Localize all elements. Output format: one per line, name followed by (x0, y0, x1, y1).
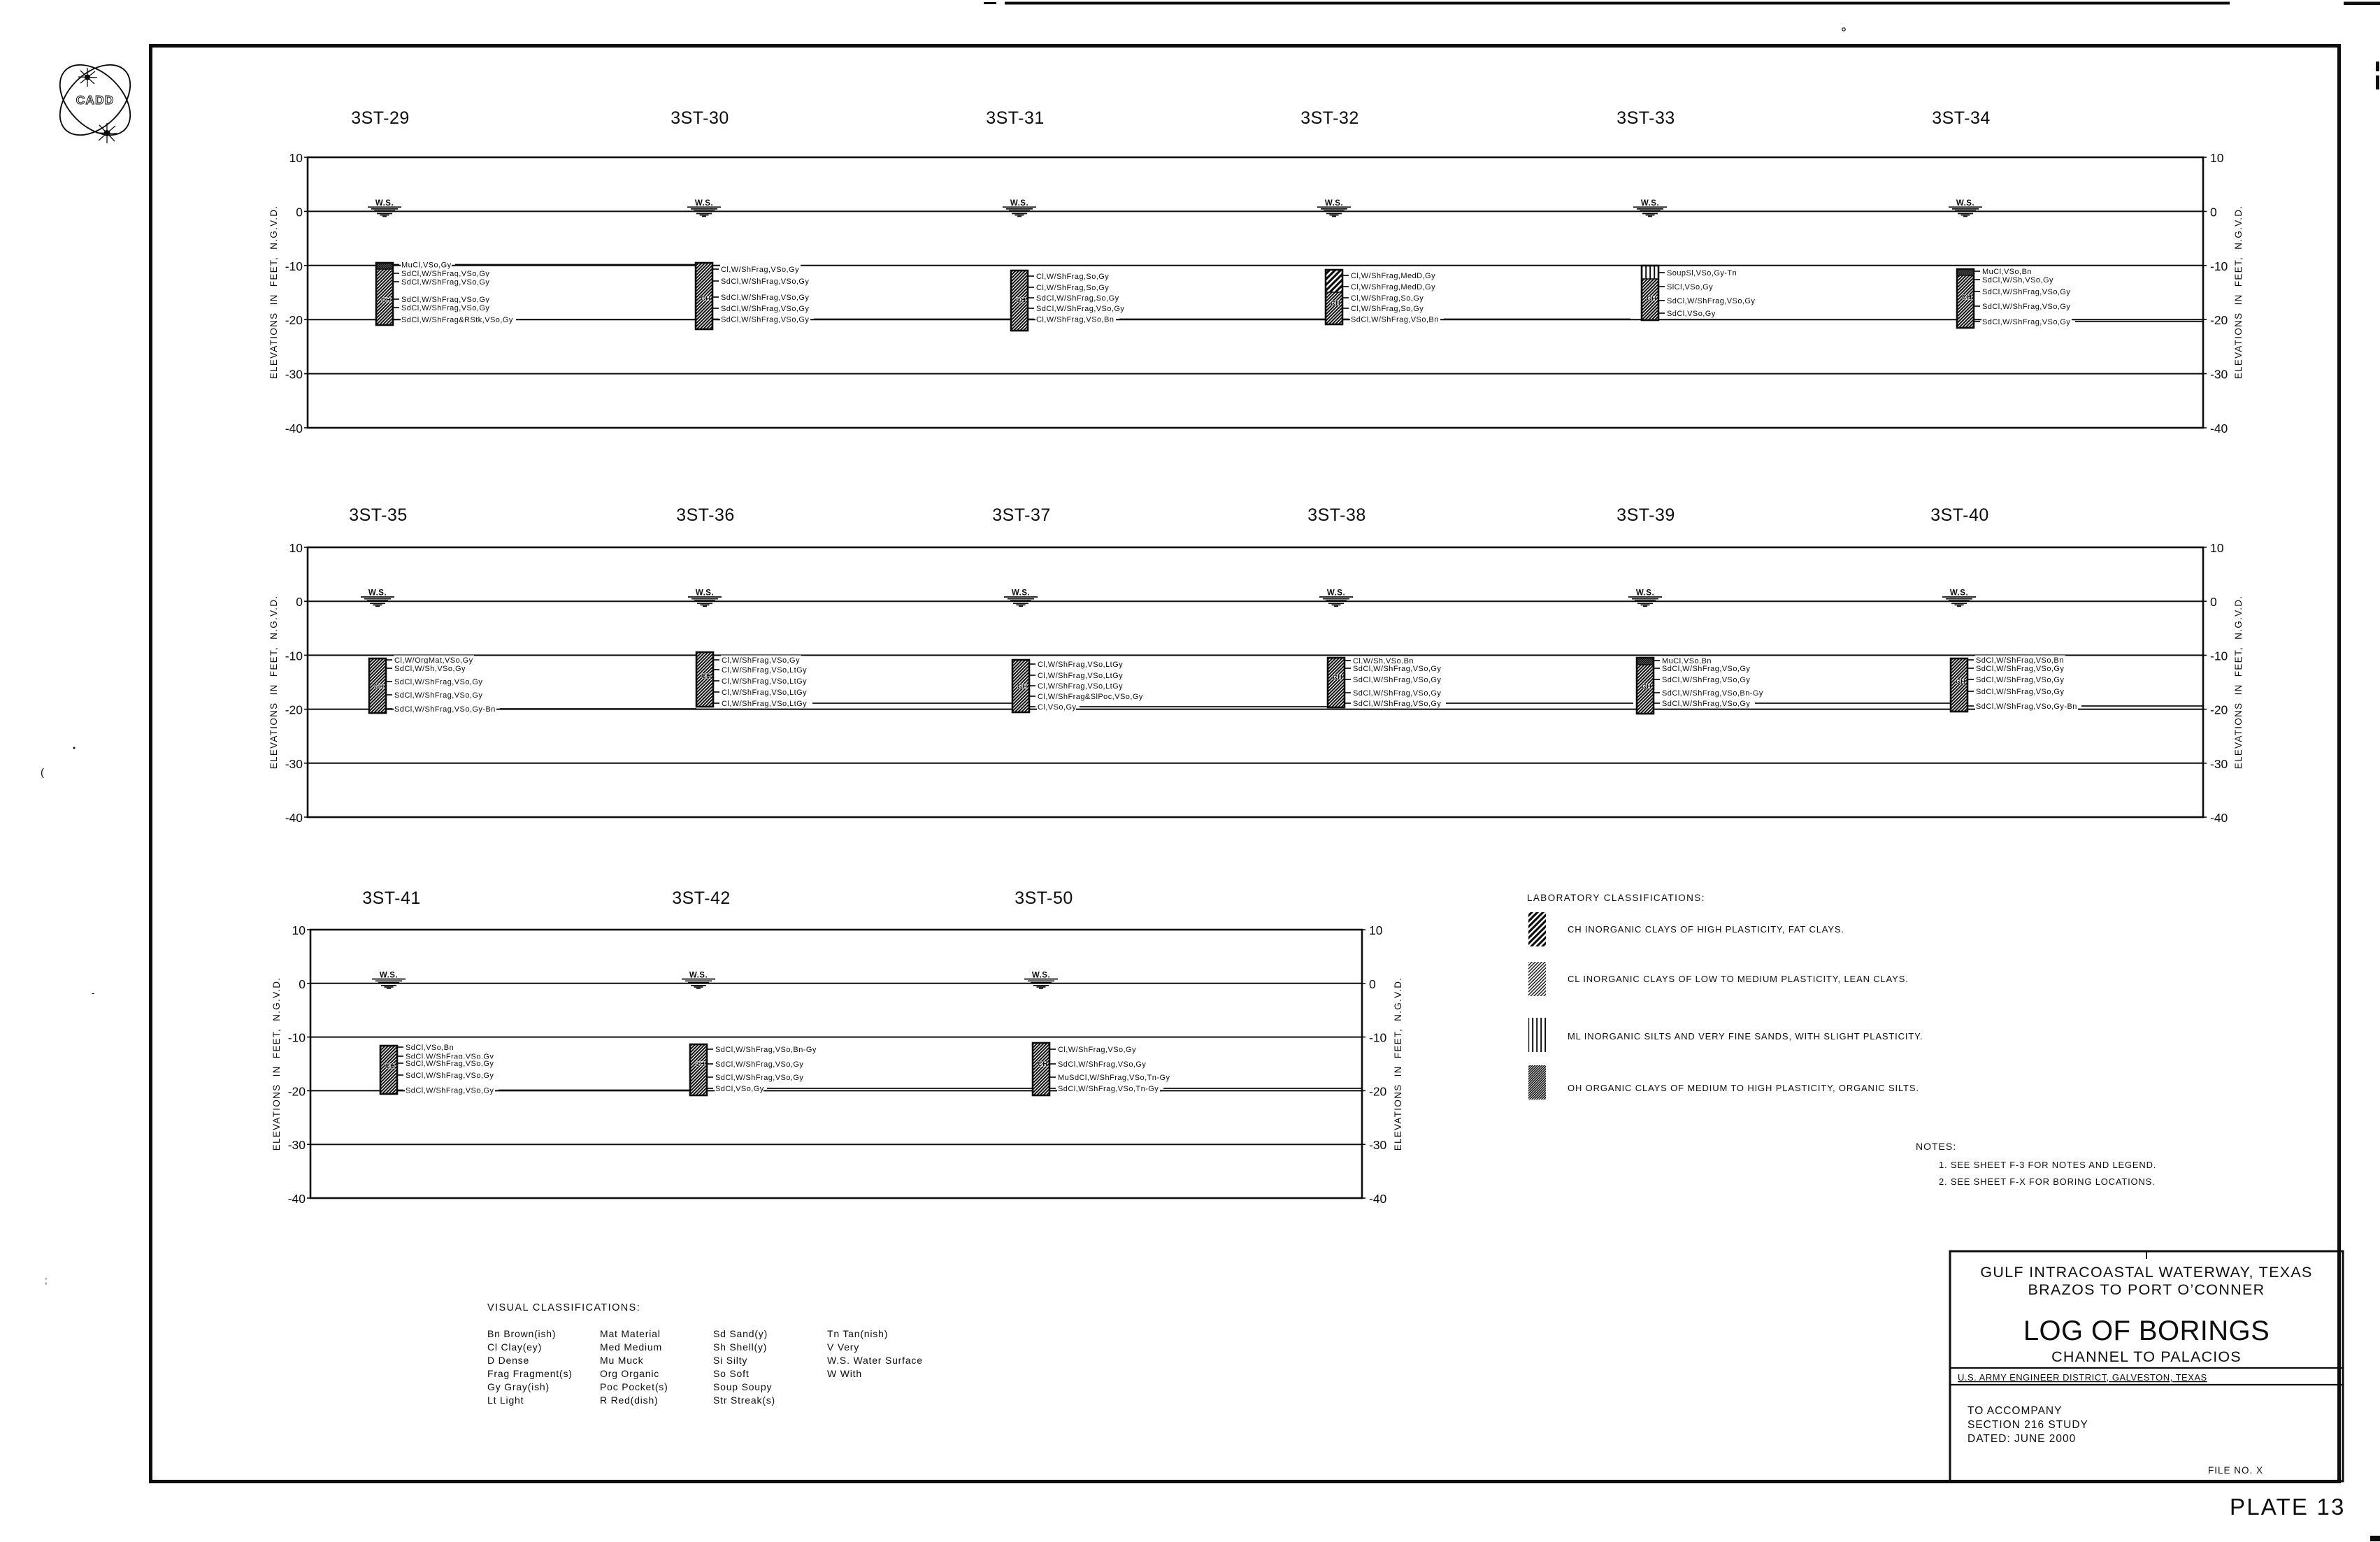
svg-text:SdCl,W/ShFrag,VSo,Gy: SdCl,W/ShFrag,VSo,Gy (1353, 676, 1441, 684)
svg-text:SdCl,W/ShFrag,VSo,Gy: SdCl,W/ShFrag,VSo,Gy (1982, 303, 2070, 311)
svg-text:Cl,W/ShFrag,VSo,Bn: Cl,W/ShFrag,VSo,Bn (1036, 316, 1114, 324)
svg-text:3ST-40: 3ST-40 (1930, 505, 1989, 525)
svg-text:CH: CH (385, 1062, 395, 1070)
svg-text:Cl,W/ShFrag,So,Gy: Cl,W/ShFrag,So,Gy (1351, 294, 1424, 303)
svg-text:SdCl,VSo,Gy: SdCl,VSo,Gy (715, 1085, 764, 1093)
svg-text:CH: CH (701, 672, 711, 680)
svg-text:SdCl,W/ShFrag,VSo,Gy: SdCl,W/ShFrag,VSo,Gy (1982, 288, 2070, 296)
svg-text:SdCl,W/ShFrag,VSo,Gy: SdCl,W/ShFrag,VSo,Gy (1353, 689, 1441, 698)
svg-text:W.S.: W.S. (696, 589, 714, 598)
svg-text:SdCl,W/ShFrag,VSo,Gy: SdCl,W/ShFrag,VSo,Gy (1662, 676, 1750, 684)
svg-text:3ST-39: 3ST-39 (1616, 505, 1675, 525)
svg-text:CH: CH (1642, 683, 1651, 691)
svg-text:Cl,VSo,Gy: Cl,VSo,Gy (1038, 703, 1076, 712)
svg-text:SdCl,W/ShFrag,VSo,Gy: SdCl,W/ShFrag,VSo,Gy (715, 1074, 803, 1082)
svg-text:SdCl,W/ShFrag&RStk,VSo,Gy: SdCl,W/ShFrag&RStk,VSo,Gy (401, 316, 513, 324)
svg-text:3ST-34: 3ST-34 (1932, 108, 1991, 128)
svg-text:MuCl,VSo,Bn: MuCl,VSo,Bn (1982, 268, 2032, 276)
svg-text:-40: -40 (285, 811, 303, 825)
svg-text:3ST-29: 3ST-29 (351, 108, 410, 128)
svg-text:LABORATORY CLASSIFICATIONS:: LABORATORY CLASSIFICATIONS: (1527, 893, 1705, 903)
svg-text:ML INORGANIC SILTS AND VERY FI: ML INORGANIC SILTS AND VERY FINE SANDS, … (1568, 1031, 1923, 1042)
svg-text:Cl,W/ShFrag,So,Gy: Cl,W/ShFrag,So,Gy (1351, 305, 1424, 313)
svg-text:LOG OF BORINGS: LOG OF BORINGS (2023, 1316, 2270, 1346)
svg-text:So Soft: So Soft (713, 1368, 750, 1379)
svg-text:SdCl,W/ShFrag,So,Gy: SdCl,W/ShFrag,So,Gy (1036, 294, 1119, 303)
svg-text:-20: -20 (2210, 313, 2228, 327)
svg-text:-10: -10 (2210, 259, 2228, 273)
svg-text:W.S.: W.S. (1636, 589, 1654, 598)
svg-text:ELEVATIONS IN FEET, N.G.V.D: ELEVATIONS IN FEET, N.G.V.D. (268, 206, 279, 380)
svg-text:W.S. Water Surface: W.S. Water Surface (827, 1355, 923, 1366)
svg-text:SdCl,W/ShFrag,VSo,Gy-Bn: SdCl,W/ShFrag,VSo,Gy-Bn (1976, 702, 2077, 711)
svg-text:Cl,W/ShFrag,VSo,LtGy: Cl,W/ShFrag,VSo,LtGy (1038, 672, 1123, 680)
svg-text:Poc Pocket(s): Poc Pocket(s) (600, 1381, 668, 1392)
svg-text:-30: -30 (2210, 368, 2228, 382)
svg-text:10: 10 (289, 151, 303, 165)
svg-text:SdCl,W/ShFrag,VSo,Gy: SdCl,W/ShFrag,VSo,Gy (1976, 688, 2064, 696)
svg-text:ELEVATIONS IN FEET, N.G.V.D: ELEVATIONS IN FEET, N.G.V.D. (1393, 977, 1403, 1151)
svg-text:-30: -30 (285, 757, 303, 771)
svg-text:W.S.: W.S. (1325, 199, 1343, 208)
svg-text:SdCl,W/ShFrag,VSo,Gy: SdCl,W/ShFrag,VSo,Gy (1662, 700, 1750, 708)
svg-text:10: 10 (2210, 151, 2224, 165)
svg-text:W.S.: W.S. (1012, 589, 1030, 598)
svg-text:PLATE 13: PLATE 13 (2230, 1494, 2346, 1520)
svg-text:MuCl,VSo,Gy: MuCl,VSo,Gy (401, 261, 452, 270)
svg-text:Bn Brown(ish): Bn Brown(ish) (487, 1328, 556, 1339)
svg-text:CADD: CADD (76, 93, 115, 107)
svg-text:ELEVATIONS IN FEET, N.G.V.D: ELEVATIONS IN FEET, N.G.V.D. (2233, 206, 2244, 380)
svg-text:1. SEE SHEET F-3 FOR NOTES AND: 1. SEE SHEET F-3 FOR NOTES AND LEGEND. (1939, 1160, 2156, 1170)
svg-text:Cl Clay(ey): Cl Clay(ey) (487, 1341, 542, 1353)
svg-text:Tn Tan(nish): Tn Tan(nish) (827, 1328, 888, 1339)
svg-text:CH: CH (1333, 674, 1342, 682)
svg-text:-30: -30 (288, 1138, 306, 1152)
svg-text:CH: CH (695, 1060, 705, 1068)
svg-text:-40: -40 (285, 421, 303, 435)
svg-text:-40: -40 (2210, 811, 2228, 825)
svg-text:Cl,W/OrgMat,VSo,Gy: Cl,W/OrgMat,VSo,Gy (394, 656, 473, 665)
svg-text:SdCl,W/ShFrag,VSo,Gy: SdCl,W/ShFrag,VSo,Gy (1353, 700, 1441, 708)
svg-text:SdCl,W/ShFrag,VSo,Gy: SdCl,W/ShFrag,VSo,Gy (1058, 1060, 1146, 1069)
svg-text:-30: -30 (1369, 1138, 1387, 1152)
svg-text:Str Streak(s): Str Streak(s) (713, 1395, 775, 1406)
svg-text:Cl,W/ShFrag,VSo,LtGy: Cl,W/ShFrag,VSo,LtGy (1038, 661, 1123, 669)
svg-text:SdCl,W/ShFrag,VSo,Gy: SdCl,W/ShFrag,VSo,Gy (394, 678, 482, 686)
svg-text:SdCl,W/ShFrag,VSo,Gy: SdCl,W/ShFrag,VSo,Gy (721, 278, 809, 286)
svg-text:SoupSl,VSo,Gy-Tn: SoupSl,VSo,Gy-Tn (1667, 269, 1737, 278)
svg-text:0: 0 (2210, 205, 2217, 219)
svg-text:Cl,W/ShFrag,VSo,Gy: Cl,W/ShFrag,VSo,Gy (1058, 1046, 1136, 1054)
svg-text:SdCl,W/Sh,VSo,Gy: SdCl,W/Sh,VSo,Gy (1982, 276, 2053, 284)
svg-text:SdCl,W/ShFrag,VSo,Gy: SdCl,W/ShFrag,VSo,Gy (1353, 665, 1441, 673)
svg-text:Gy Gray(ish): Gy Gray(ish) (487, 1381, 550, 1392)
svg-text:SdCl,W/ShFrag,VSo,Gy: SdCl,W/ShFrag,VSo,Gy (1667, 297, 1755, 305)
svg-text:W With: W With (827, 1368, 862, 1379)
svg-text:TO ACCOMPANY: TO ACCOMPANY (1967, 1405, 2062, 1417)
svg-text:Cl,W/ShFrag,So,Gy: Cl,W/ShFrag,So,Gy (1036, 273, 1109, 281)
svg-text:-10: -10 (285, 649, 303, 663)
svg-text:VISUAL CLASSIFICATIONS:: VISUAL CLASSIFICATIONS: (487, 1302, 640, 1313)
svg-text:-20: -20 (285, 313, 303, 327)
svg-text:W.S.: W.S. (689, 971, 708, 979)
svg-text:;: ; (45, 1275, 48, 1285)
svg-text:SdCl,W/Sh,VSo,Gy: SdCl,W/Sh,VSo,Gy (394, 665, 466, 673)
svg-text:SdCl,W/ShFrag,VSo,Gy: SdCl,W/ShFrag,VSo,Gy (394, 691, 482, 700)
svg-text:Med Medium: Med Medium (600, 1341, 662, 1353)
svg-text:Org Organic: Org Organic (600, 1368, 659, 1379)
svg-text:CH: CH (1331, 300, 1340, 308)
svg-text:3ST-42: 3ST-42 (672, 888, 731, 908)
svg-text:W.S.: W.S. (1010, 199, 1028, 208)
svg-text:Cl,W/ShFrag,MedD,Gy: Cl,W/ShFrag,MedD,Gy (1351, 283, 1435, 291)
svg-text:Mu Muck: Mu Muck (600, 1355, 644, 1366)
svg-text:CH: CH (701, 295, 710, 303)
svg-text:(: ( (41, 767, 44, 779)
svg-text:SdCl,W/ShFrag,VSo,Bn: SdCl,W/ShFrag,VSo,Bn (1976, 656, 2064, 665)
svg-text:CH INORGANIC CLAYS OF HIGH PLA: CH INORGANIC CLAYS OF HIGH PLASTICITY, F… (1568, 924, 1844, 935)
svg-text:Sh Shell(y): Sh Shell(y) (713, 1341, 767, 1353)
svg-text:BRAZOS TO PORT O’CONNER: BRAZOS TO PORT O’CONNER (2028, 1281, 2265, 1298)
svg-text:-30: -30 (285, 368, 303, 382)
svg-text:SdCl,W/ShFrag,VSo,Gy: SdCl,W/ShFrag,VSo,Gy (1662, 665, 1750, 673)
svg-text:-40: -40 (288, 1192, 306, 1206)
svg-text:0: 0 (299, 977, 306, 991)
svg-text:2. SEE SHEET F-X FOR BORING LO: 2. SEE SHEET F-X FOR BORING LOCATIONS. (1939, 1176, 2155, 1187)
svg-text:W.S.: W.S. (1956, 199, 1974, 208)
svg-text:SdCl,W/ShFrag,VSo,Gy: SdCl,W/ShFrag,VSo,Gy (1976, 665, 2064, 673)
svg-text:SdCl,W/ShFrag,VSo,Gy: SdCl,W/ShFrag,VSo,Gy (721, 305, 809, 313)
svg-text:Cl,W/ShFrag&SlPoc,VSo,Gy: Cl,W/ShFrag&SlPoc,VSo,Gy (1038, 693, 1143, 701)
svg-text:W.S.: W.S. (1032, 971, 1050, 979)
svg-text:-40: -40 (1369, 1192, 1387, 1206)
svg-text:ELEVATIONS IN FEET, N.G.V.D: ELEVATIONS IN FEET, N.G.V.D. (268, 596, 279, 770)
svg-text:Soup Soupy: Soup Soupy (713, 1381, 772, 1392)
svg-text:W.S.: W.S. (1327, 589, 1345, 598)
svg-text:SdCl,W/ShFrag,VSo,Gy: SdCl,W/ShFrag,VSo,Gy (715, 1060, 803, 1069)
svg-text:SdCl,W/ShFrag,VSo,Gy: SdCl,W/ShFrag,VSo,Gy (401, 270, 489, 278)
svg-text:CHANNEL TO PALACIOS: CHANNEL TO PALACIOS (2051, 1348, 2242, 1365)
svg-text:U.S. ARMY ENGINEER DISTRICT, G: U.S. ARMY ENGINEER DISTRICT, GALVESTON, … (1958, 1372, 2207, 1383)
svg-text:MuSdCl,W/ShFrag,VSo,Tn-Gy: MuSdCl,W/ShFrag,VSo,Tn-Gy (1058, 1074, 1170, 1082)
svg-text:0: 0 (296, 205, 303, 219)
svg-text:-10: -10 (285, 259, 303, 273)
svg-text:CH: CH (1017, 683, 1027, 691)
svg-text:SdCl,W/ShFrag,VSo,Gy: SdCl,W/ShFrag,VSo,Gy (1036, 305, 1124, 313)
svg-text:3ST-36: 3ST-36 (676, 505, 735, 525)
svg-text:-30: -30 (2210, 757, 2228, 771)
svg-text:Cl,W/ShFrag,VSo,Gy: Cl,W/ShFrag,VSo,Gy (721, 266, 799, 274)
svg-text:-10: -10 (288, 1031, 306, 1045)
svg-text:OH ORGANIC CLAYS OF MEDIUM TO: OH ORGANIC CLAYS OF MEDIUM TO HIGH PLAST… (1568, 1083, 1919, 1093)
svg-text:Sd Sand(y): Sd Sand(y) (713, 1328, 768, 1339)
svg-text:SdCl,W/ShFrag,VSo,Gy: SdCl,W/ShFrag,VSo,Gy (401, 278, 489, 287)
svg-text:3ST-31: 3ST-31 (986, 108, 1045, 128)
svg-text:SdCl,W/ShFrag,VSo,Bn-Gy: SdCl,W/ShFrag,VSo,Bn-Gy (715, 1046, 817, 1054)
svg-text:Mat Material: Mat Material (600, 1328, 661, 1339)
svg-text:CH: CH (1956, 678, 1965, 686)
svg-text:W.S.: W.S. (1641, 199, 1659, 208)
svg-text:ELEVATIONS IN FEET, N.G.V.D: ELEVATIONS IN FEET, N.G.V.D. (271, 977, 282, 1151)
svg-text:CL INORGANIC CLAYS OF LOW TO M: CL INORGANIC CLAYS OF LOW TO MEDIUM PLAS… (1568, 974, 1909, 984)
svg-text:0: 0 (1369, 977, 1376, 991)
svg-text:SlCl,VSo,Gy: SlCl,VSo,Gy (1667, 283, 1713, 291)
svg-text:Cl,W/ShFrag,MedD,Gy: Cl,W/ShFrag,MedD,Gy (1351, 272, 1435, 280)
svg-text:W.S.: W.S. (695, 199, 713, 208)
svg-text:CH: CH (381, 296, 391, 304)
svg-text:V Very: V Very (827, 1341, 859, 1353)
svg-text:SdCl,VSo,Gy: SdCl,VSo,Gy (1667, 310, 1716, 318)
svg-text:-20: -20 (288, 1084, 306, 1098)
svg-text:Cl,W/ShFrag,VSo,LtGy: Cl,W/ShFrag,VSo,LtGy (722, 677, 807, 686)
svg-text:DATED: JUNE 2000: DATED: JUNE 2000 (1967, 1433, 2076, 1445)
svg-text:Frag Fragment(s): Frag Fragment(s) (487, 1368, 573, 1379)
svg-text:SdCl,VSo,Bn: SdCl,VSo,Bn (406, 1044, 454, 1052)
svg-text:SdCl,W/ShFrag,VSo,Gy: SdCl,W/ShFrag,VSo,Gy (401, 304, 489, 312)
svg-text:GULF INTRACOASTAL WATERWAY, TE: GULF INTRACOASTAL WATERWAY, TEXAS (1980, 1264, 2312, 1281)
svg-text:10: 10 (1369, 923, 1383, 937)
svg-text:SdCl,W/ShFrag,VSo,Gy: SdCl,W/ShFrag,VSo,Gy (406, 1087, 494, 1095)
svg-text:-: - (92, 988, 94, 998)
svg-text:SdCl,W/ShFrag,VSo,Gy: SdCl,W/ShFrag,VSo,Gy (1976, 676, 2064, 684)
svg-text:SdCl,W/ShFrag,VSo,Gy: SdCl,W/ShFrag,VSo,Gy (1982, 318, 2070, 326)
svg-text:CH: CH (1962, 294, 1972, 301)
svg-text:0: 0 (2210, 595, 2217, 609)
svg-text:Cl,W/ShFrag,VSo,LtGy: Cl,W/ShFrag,VSo,LtGy (1038, 682, 1123, 691)
svg-text:Cl,W/ShFrag,VSo,Gy: Cl,W/ShFrag,VSo,Gy (722, 656, 800, 665)
svg-text:CH: CH (1016, 296, 1026, 304)
svg-text:10: 10 (289, 541, 303, 555)
svg-text:CH: CH (1647, 295, 1656, 303)
svg-text:SdCl,W/ShFrag,VSo,Tn-Gy: SdCl,W/ShFrag,VSo,Tn-Gy (1058, 1085, 1159, 1093)
svg-text:Cl,W/ShFrag,So,Gy: Cl,W/ShFrag,So,Gy (1036, 284, 1109, 292)
svg-text:Lt Light: Lt Light (487, 1395, 524, 1406)
svg-text:10: 10 (292, 923, 306, 937)
svg-text:NOTES:: NOTES: (1916, 1141, 1956, 1152)
svg-text:SdCl,W/ShFrag,VSo,Gy: SdCl,W/ShFrag,VSo,Gy (401, 296, 489, 304)
svg-text:3ST-32: 3ST-32 (1300, 108, 1359, 128)
svg-text:0: 0 (296, 595, 303, 609)
svg-text:CH: CH (1038, 1060, 1047, 1068)
svg-text:-10: -10 (1369, 1031, 1387, 1045)
svg-text:-20: -20 (1369, 1084, 1387, 1098)
svg-text:3ST-30: 3ST-30 (671, 108, 729, 128)
svg-text:SECTION 216 STUDY: SECTION 216 STUDY (1967, 1419, 2088, 1431)
svg-text:SdCl,W/ShFrag,VSo,Bn-Gy: SdCl,W/ShFrag,VSo,Bn-Gy (1662, 689, 1763, 698)
svg-text:W.S.: W.S. (1950, 589, 1968, 598)
svg-text:W.S.: W.S. (380, 971, 398, 979)
svg-text:ELEVATIONS IN FEET, N.G.V.D: ELEVATIONS IN FEET, N.G.V.D. (2233, 596, 2244, 770)
svg-text:SdCl,W/ShFrag,VSo,Gy: SdCl,W/ShFrag,VSo,Gy (406, 1060, 494, 1068)
svg-text:Cl,W/ShFrag,VSo,LtGy: Cl,W/ShFrag,VSo,LtGy (722, 700, 807, 708)
svg-text:Cl,W/ShFrag,VSo,LtGy: Cl,W/ShFrag,VSo,LtGy (722, 689, 807, 697)
svg-text:R Red(dish): R Red(dish) (600, 1395, 659, 1406)
svg-text:3ST-37: 3ST-37 (992, 505, 1051, 525)
svg-text:Si Silty: Si Silty (713, 1355, 747, 1366)
svg-text:W.S.: W.S. (368, 589, 387, 598)
svg-text:D Dense: D Dense (487, 1355, 529, 1366)
svg-text:-20: -20 (285, 703, 303, 717)
svg-text:3ST-33: 3ST-33 (1616, 108, 1675, 128)
svg-text:-40: -40 (2210, 421, 2228, 435)
svg-text:SdCl,W/ShFrag,VSo,Gy: SdCl,W/ShFrag,VSo,Gy (406, 1072, 494, 1080)
svg-text:W.S.: W.S. (375, 199, 394, 208)
svg-text:3ST-38: 3ST-38 (1307, 505, 1366, 525)
svg-text:CH: CH (374, 683, 384, 691)
svg-text:-20: -20 (2210, 703, 2228, 717)
svg-text:3ST-50: 3ST-50 (1015, 888, 1073, 908)
svg-text:3ST-41: 3ST-41 (362, 888, 421, 908)
svg-text:FILE NO. X: FILE NO. X (2208, 1465, 2263, 1476)
svg-text:SdCl,W/ShFrag,VSo,Gy: SdCl,W/ShFrag,VSo,Gy (721, 316, 809, 324)
svg-text:SdCl,W/ShFrag,VSo,Gy: SdCl,W/ShFrag,VSo,Gy (721, 294, 809, 302)
svg-text:3ST-35: 3ST-35 (349, 505, 408, 525)
svg-text:-10: -10 (2210, 649, 2228, 663)
svg-text:10: 10 (2210, 541, 2224, 555)
svg-text:SdCl,W/ShFrag,VSo,Gy-Bn: SdCl,W/ShFrag,VSo,Gy-Bn (394, 705, 496, 714)
svg-text:Cl,W/ShFrag,VSo,LtGy: Cl,W/ShFrag,VSo,LtGy (722, 666, 807, 675)
svg-text:SdCl,W/ShFrag,VSo,Bn: SdCl,W/ShFrag,VSo,Bn (1351, 316, 1439, 324)
